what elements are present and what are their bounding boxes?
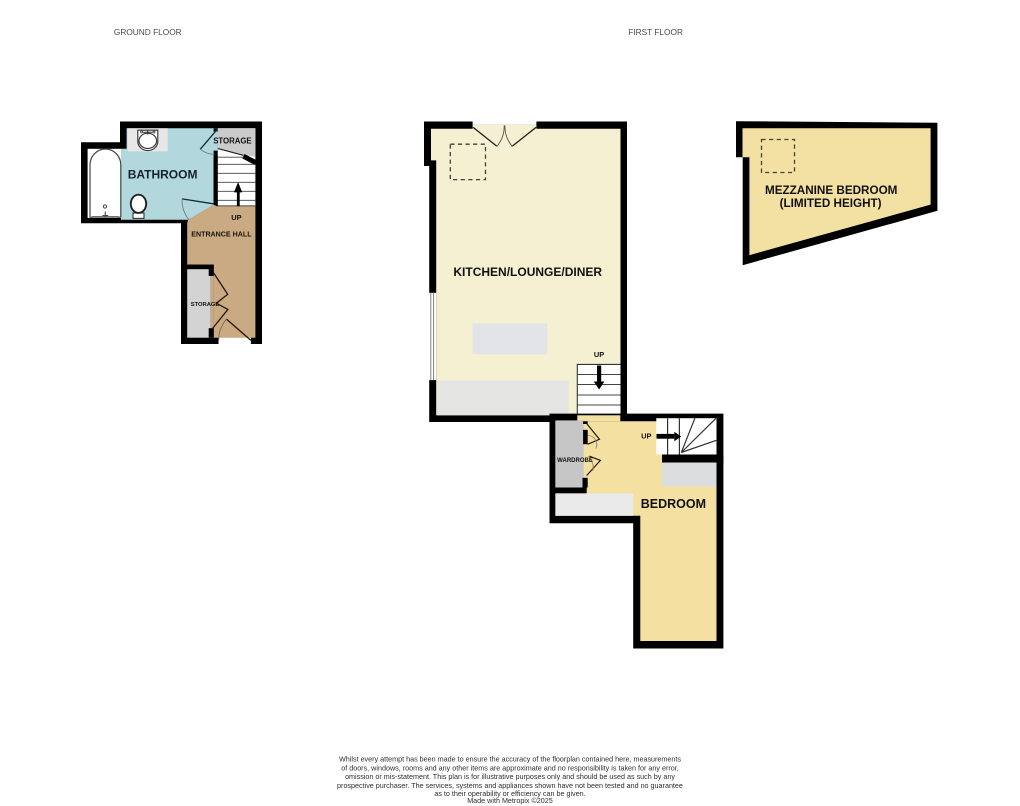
svg-text:omission or mis-statement. Thi: omission or mis-statement. This plan is … <box>345 772 675 781</box>
svg-text:ENTRANCE HALL: ENTRANCE HALL <box>191 230 252 238</box>
svg-text:BATHROOM: BATHROOM <box>128 168 198 182</box>
svg-text:UP: UP <box>231 213 241 222</box>
svg-text:Made with Metropix ©2025: Made with Metropix ©2025 <box>467 796 553 805</box>
svg-text:STORAGE: STORAGE <box>213 137 251 146</box>
svg-text:WARDROBE: WARDROBE <box>557 458 593 464</box>
svg-text:GROUND FLOOR: GROUND FLOOR <box>114 27 182 37</box>
svg-text:UP: UP <box>641 432 651 441</box>
svg-text:of doors, windows, rooms and a: of doors, windows, rooms and any other i… <box>341 763 679 772</box>
svg-text:UP: UP <box>594 350 604 359</box>
svg-text:STORAGE: STORAGE <box>191 302 220 308</box>
svg-text:KITCHEN/LOUNGE/DINER: KITCHEN/LOUNGE/DINER <box>453 265 602 279</box>
svg-text:FIRST FLOOR: FIRST FLOOR <box>628 27 683 37</box>
svg-text:(LIMITED HEIGHT): (LIMITED HEIGHT) <box>780 197 882 210</box>
svg-text:BEDROOM: BEDROOM <box>641 497 706 511</box>
svg-text:Whilst every attempt has been: Whilst every attempt has been made to en… <box>339 755 681 764</box>
svg-text:MEZZANINE BEDROOM: MEZZANINE BEDROOM <box>765 184 897 197</box>
